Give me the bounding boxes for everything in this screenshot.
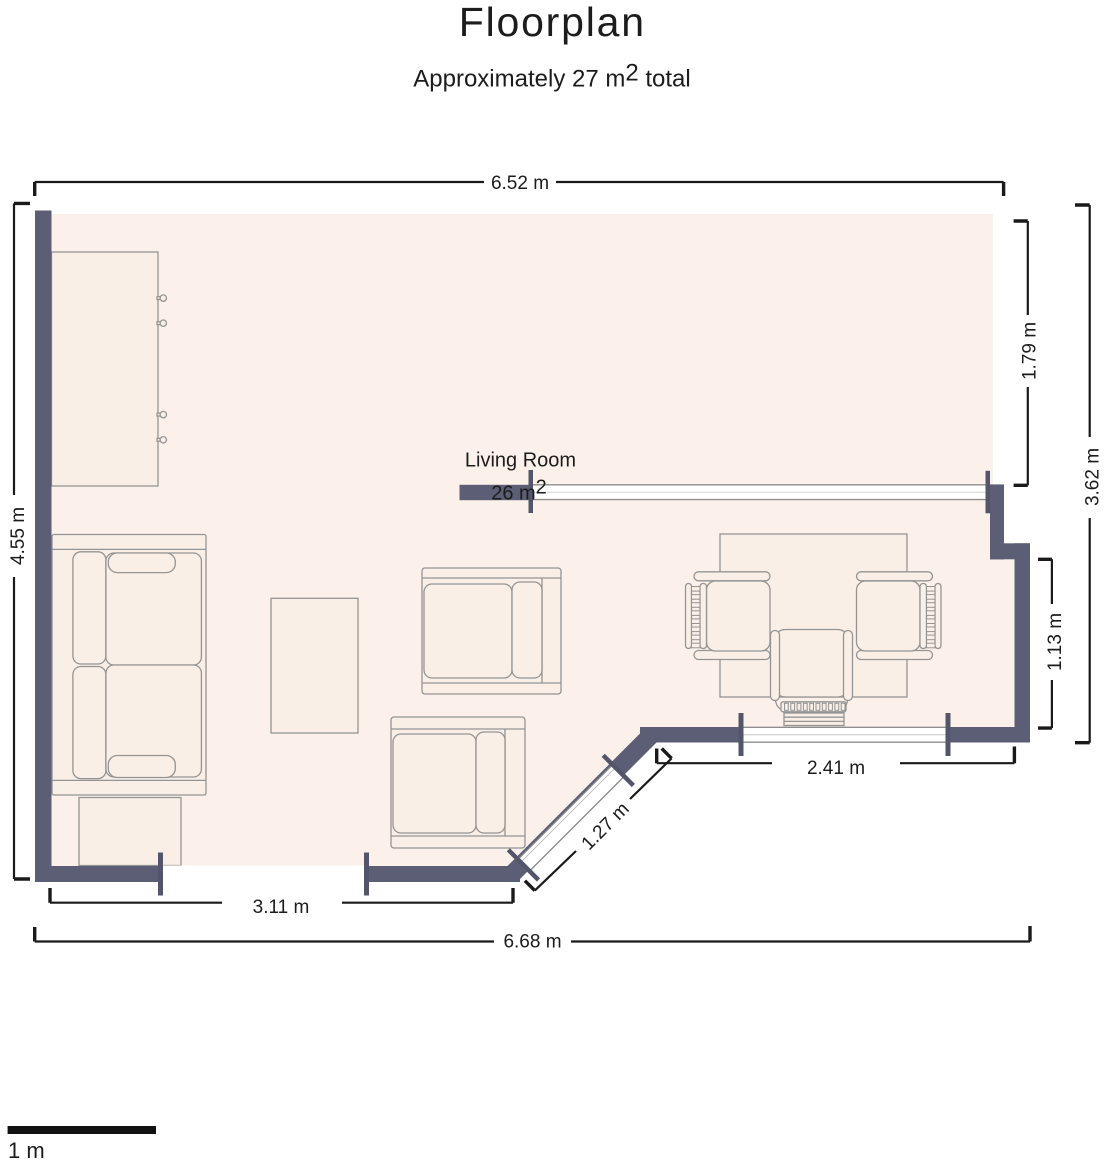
svg-text:Approximately 27 m2 total: Approximately 27 m2 total [413, 60, 690, 93]
svg-text:4.55 m: 4.55 m [8, 507, 29, 565]
svg-text:Living Room: Living Room [465, 450, 576, 472]
svg-text:1.79 m: 1.79 m [1019, 322, 1040, 380]
svg-text:2.41 m: 2.41 m [807, 758, 865, 779]
svg-text:1 m: 1 m [8, 1138, 45, 1163]
svg-text:6.52 m: 6.52 m [491, 173, 549, 194]
svg-text:1.13 m: 1.13 m [1045, 613, 1066, 671]
svg-text:3.62 m: 3.62 m [1083, 448, 1104, 506]
svg-text:Floorplan: Floorplan [459, 0, 646, 45]
svg-text:3.11 m: 3.11 m [253, 897, 310, 918]
svg-text:6.68 m: 6.68 m [503, 932, 561, 953]
